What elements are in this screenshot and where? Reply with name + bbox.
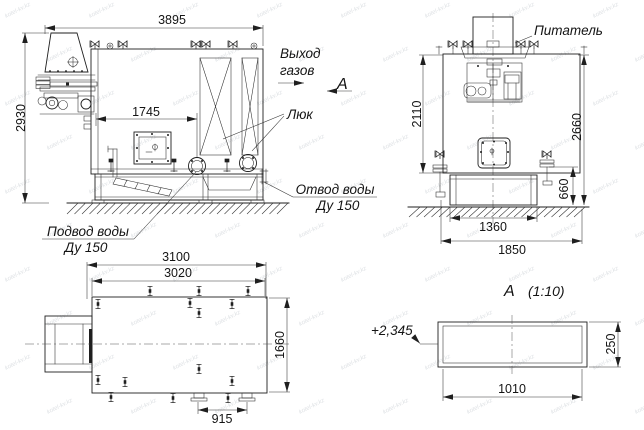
valve-icon: [197, 308, 202, 318]
watermark-text: kotel-kv.kz: [592, 90, 620, 108]
valve-icon: [230, 376, 235, 386]
dim-text-overall-width-front: 1850: [498, 243, 526, 257]
watermark-text: kotel-kv.kz: [214, 222, 242, 240]
label-water-outlet: Отвод воды Ду 150: [264, 182, 377, 213]
side-flange-stub: [84, 124, 91, 129]
valve-icon: [197, 364, 202, 374]
label-water-outlet-1: Отвод воды: [296, 182, 375, 197]
watermark-text: kotel-kv.kz: [550, 310, 578, 328]
watermark-text: kotel-kv.kz: [46, 398, 74, 416]
valve-icon: [230, 299, 235, 309]
boiler-drawing-svg: kotel-kv.kzkotel-kv.kzkotel-kv.kzkotel-k…: [0, 0, 644, 430]
watermark-text: kotel-kv.kz: [256, 90, 284, 108]
dimension-2930: 2930: [14, 33, 49, 203]
watermark-text: kotel-kv.kz: [634, 398, 644, 416]
watermark-text: kotel-kv.kz: [214, 310, 242, 328]
watermark-text: kotel-kv.kz: [298, 222, 326, 240]
watermark-text: kotel-kv.kz: [172, 354, 200, 372]
detail-title-letter: А: [503, 283, 515, 300]
watermark-text: kotel-kv.kz: [46, 310, 74, 328]
valve-icon: [197, 286, 202, 296]
watermark-text: kotel-kv.kz: [466, 134, 494, 152]
dim-text-overall-height: 2930: [14, 104, 28, 132]
valve-icon: [463, 41, 472, 50]
watermark-text: kotel-kv.kz: [46, 134, 74, 152]
watermark-text: kotel-kv.kz: [4, 266, 32, 284]
watermark-text: kotel-kv.kz: [88, 178, 116, 196]
valve-icon: [123, 377, 128, 387]
watermark-text: kotel-kv.kz: [382, 134, 410, 152]
side-flange-stub: [84, 116, 91, 121]
watermark-text: kotel-kv.kz: [424, 2, 452, 20]
valve-icon: [171, 393, 176, 403]
watermark-text: kotel-kv.kz: [130, 222, 158, 240]
dim-text-front-to-flange: 1745: [132, 105, 160, 119]
watermark-text: kotel-kv.kz: [214, 134, 242, 152]
valve-icon: [448, 41, 457, 50]
side-valve-right: [540, 151, 554, 186]
watermark-text: kotel-kv.kz: [592, 2, 620, 20]
dim-text-total-height: 2660: [570, 113, 584, 141]
dimension-1660: 1660: [269, 298, 290, 392]
fuel-hopper-front: [461, 17, 529, 58]
elevation-mark-text: +2,345: [371, 323, 413, 338]
watermark-text: kotel-kv.kz: [634, 310, 644, 328]
ground-hatching-front: [409, 207, 585, 217]
watermark-text: kotel-kv.kz: [130, 398, 158, 416]
hatch-panel-right: [242, 58, 258, 155]
duct-outline: [438, 322, 587, 367]
watermark-text: kotel-kv.kz: [298, 398, 326, 416]
boiler-body-plan: [92, 297, 267, 393]
ash-trough: [203, 177, 256, 190]
support-frame-front: [450, 175, 537, 205]
watermark-text: kotel-kv.kz: [466, 310, 494, 328]
ground-hatching-side: [67, 203, 288, 214]
valve-icon: [109, 392, 114, 402]
plan-view: 3100 3020 1660 915: [25, 250, 290, 426]
watermark-text: kotel-kv.kz: [256, 178, 284, 196]
watermark-text: kotel-kv.kz: [340, 266, 368, 284]
watermark-text: kotel-kv.kz: [634, 46, 644, 64]
label-water-inlet-1: Подвод воды: [47, 224, 129, 239]
watermark-text: kotel-kv.kz: [382, 222, 410, 240]
drain-stud-icon: [224, 159, 231, 172]
drain-stud-icon: [171, 159, 178, 172]
valve-icon: [148, 286, 153, 296]
pipe-stub-left: [191, 393, 207, 401]
detail-view-a: А (1:10) +2,345 250 1010: [371, 283, 621, 401]
watermark-text: kotel-kv.kz: [214, 46, 242, 64]
valve-icon: [118, 41, 127, 50]
valve-icon: [246, 286, 251, 296]
technical-drawing-canvas: kotel-kv.kzkotel-kv.kzkotel-kv.kzkotel-k…: [0, 0, 644, 430]
watermark-text: kotel-kv.kz: [130, 46, 158, 64]
watermark-text: kotel-kv.kz: [592, 266, 620, 284]
watermark-text: kotel-kv.kz: [550, 398, 578, 416]
watermark-text: kotel-kv.kz: [424, 178, 452, 196]
watermark-text: kotel-kv.kz: [88, 90, 116, 108]
dim-text-base-width: 1360: [479, 220, 507, 234]
dimension-1360: 1360: [450, 207, 537, 234]
dimension-3020: 3020: [92, 266, 265, 296]
label-gas-outlet-1: Выход: [280, 46, 321, 61]
valve-icon: [201, 41, 210, 50]
dimension-1010: 1010: [443, 369, 582, 401]
watermark-text: kotel-kv.kz: [466, 398, 494, 416]
dim-text-overall-depth: 1660: [273, 331, 287, 359]
watermark-text: kotel-kv.kz: [256, 2, 284, 20]
watermark-text: kotel-kv.kz: [340, 354, 368, 372]
dim-text-body-length: 3020: [164, 266, 192, 280]
watermark-text: kotel-kv.kz: [424, 266, 452, 284]
water-flange-left: [189, 158, 206, 175]
support-frame-side: [92, 146, 268, 203]
watermark-text: kotel-kv.kz: [4, 2, 32, 20]
detail-title-scale: (1:10): [528, 283, 565, 299]
pipe-stub-right: [239, 393, 255, 401]
label-view-arrow-letter: А: [336, 76, 348, 93]
watermark-text: kotel-kv.kz: [508, 178, 536, 196]
dim-text-detail-height: 250: [604, 334, 618, 355]
drain-stud-icon: [108, 159, 115, 172]
inspection-door-front: [478, 138, 510, 168]
valve-icon: [96, 299, 101, 309]
watermark-text: kotel-kv.kz: [4, 178, 32, 196]
label-water-inlet: Подвод воды Ду 150: [42, 172, 196, 255]
watermark-text: kotel-kv.kz: [634, 134, 644, 152]
label-water-inlet-2: Ду 150: [63, 240, 108, 255]
watermark-text: kotel-kv.kz: [130, 310, 158, 328]
watermark-text: kotel-kv.kz: [550, 222, 578, 240]
dim-text-body-height: 2110: [410, 101, 424, 128]
dim-text-base-height: 660: [557, 179, 571, 200]
watermark-text: kotel-kv.kz: [298, 134, 326, 152]
watermark-text: kotel-kv.kz: [592, 178, 620, 196]
watermark-text: kotel-kv.kz: [46, 46, 74, 64]
valve-icon: [96, 375, 101, 385]
watermark-text: kotel-kv.kz: [382, 46, 410, 64]
dim-text-detail-length: 1010: [498, 382, 526, 396]
watermark-text: kotel-kv.kz: [340, 2, 368, 20]
label-gas-outlet-2: газов: [280, 63, 314, 78]
dim-text-stub-spacing: 915: [212, 412, 233, 426]
label-hatch: Люк: [286, 107, 313, 122]
valve-icon: [90, 41, 99, 50]
valve-icon: [188, 298, 193, 308]
watermark-text: kotel-kv.kz: [298, 310, 326, 328]
watermark-text: kotel-kv.kz: [88, 2, 116, 20]
hatch-panel-left: [200, 58, 231, 155]
watermark-text: kotel-kv.kz: [508, 266, 536, 284]
dimension-3895: 3895: [45, 13, 263, 46]
label-water-outlet-2: Ду 150: [315, 198, 360, 213]
dim-text-overall-width: 3895: [158, 13, 186, 27]
watermark-text: kotel-kv.kz: [382, 398, 410, 416]
valve-icon: [529, 41, 538, 50]
grate-ladder: [113, 178, 172, 196]
elevation-leader-arrow-icon: [414, 337, 420, 344]
watermark-text: kotel-kv.kz: [424, 90, 452, 108]
valve-icon: [191, 41, 200, 50]
vent-cap-icon: [107, 43, 113, 49]
watermark-text: kotel-kv.kz: [550, 46, 578, 64]
label-feeder: Питатель: [534, 23, 603, 38]
watermark-text: kotel-kv.kz: [466, 46, 494, 64]
watermark-text: kotel-kv.kz: [634, 222, 644, 240]
watermark-text: kotel-kv.kz: [4, 354, 32, 372]
feeder-machinery-front: [464, 59, 522, 102]
dim-text-overall-length: 3100: [162, 250, 190, 264]
watermark-text: kotel-kv.kz: [592, 354, 620, 372]
watermark-text: kotel-kv.kz: [172, 90, 200, 108]
vent-cap-icon: [251, 43, 257, 49]
